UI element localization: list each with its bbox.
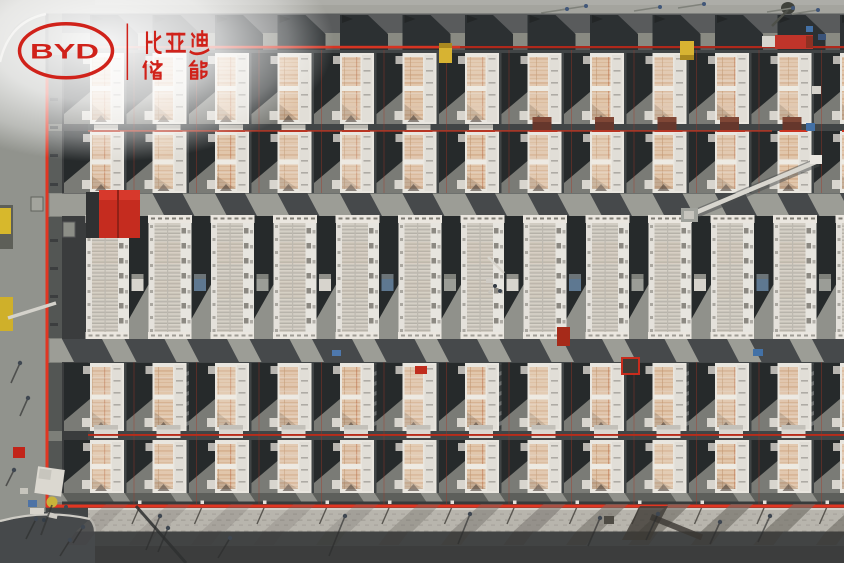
svg-text:BYD: BYD bbox=[30, 40, 99, 64]
